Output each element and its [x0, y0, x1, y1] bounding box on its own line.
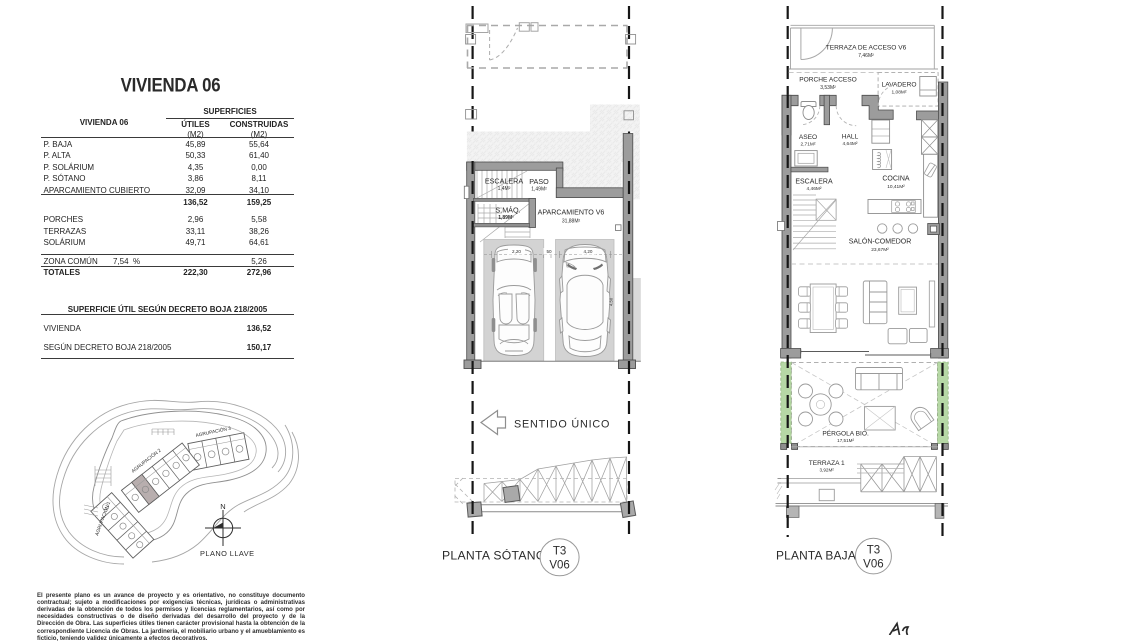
- svg-text:4,20: 4,20: [584, 249, 593, 254]
- svg-text:ASEO: ASEO: [799, 134, 817, 141]
- svg-text:4,46M²: 4,46M²: [807, 186, 822, 192]
- svg-text:2,20: 2,20: [512, 249, 521, 254]
- svg-text:23,67M²: 23,67M²: [871, 247, 889, 253]
- svg-text:1,89M²: 1,89M²: [498, 215, 514, 221]
- svg-text:T3: T3: [553, 546, 566, 558]
- svg-text:TERRAZA 1: TERRAZA 1: [809, 460, 845, 467]
- svg-text:TERRAZA DE ACCESO V6: TERRAZA DE ACCESO V6: [826, 45, 907, 52]
- svg-text:V06: V06: [863, 559, 883, 571]
- svg-text:PASO: PASO: [529, 177, 549, 186]
- svg-text:1,49M²: 1,49M²: [531, 186, 547, 192]
- svg-text:COCINA: COCINA: [882, 176, 910, 183]
- svg-text:3,53M²: 3,53M²: [820, 85, 836, 91]
- svg-text:PLANO LLAVE: PLANO LLAVE: [200, 549, 255, 558]
- svg-text:S.MÁQ.: S.MÁQ.: [495, 206, 520, 215]
- svg-text:ESCALERA: ESCALERA: [485, 177, 524, 186]
- svg-text:17,51M²: 17,51M²: [837, 438, 854, 443]
- svg-text:PORCHE ACCESO: PORCHE ACCESO: [799, 77, 857, 84]
- svg-text:PÉRGOLA BIO.: PÉRGOLA BIO.: [822, 428, 869, 437]
- svg-text:4,64M²: 4,64M²: [843, 141, 858, 147]
- svg-text:3,92M²: 3,92M²: [820, 468, 835, 473]
- svg-text:V06: V06: [549, 560, 569, 572]
- svg-text:ESCALERA: ESCALERA: [795, 178, 833, 185]
- svg-text:SENTIDO ÚNICO: SENTIDO ÚNICO: [514, 418, 610, 431]
- svg-text:1,08M²: 1,08M²: [892, 89, 907, 95]
- svg-text:2,71M²: 2,71M²: [801, 141, 816, 147]
- svg-text:1,4M²: 1,4M²: [498, 186, 511, 192]
- svg-text:31,88M²: 31,88M²: [562, 218, 581, 224]
- svg-text:4,50: 4,50: [609, 297, 614, 306]
- svg-text:SALÓN-COMEDOR: SALÓN-COMEDOR: [849, 236, 912, 245]
- svg-text:7,46M²: 7,46M²: [858, 53, 874, 59]
- svg-text:50: 50: [546, 249, 552, 254]
- svg-text:10,41M²: 10,41M²: [887, 184, 905, 190]
- svg-text:HALL: HALL: [842, 133, 859, 140]
- svg-text:PLANTA BAJA: PLANTA BAJA: [776, 549, 856, 563]
- svg-text:APARCAMIENTO V6: APARCAMIENTO V6: [538, 209, 605, 217]
- svg-text:T3: T3: [867, 545, 880, 557]
- svg-text:LAVADERO: LAVADERO: [882, 82, 917, 89]
- svg-text:N: N: [220, 502, 225, 511]
- svg-text:PLANTA SÓTANO: PLANTA SÓTANO: [442, 548, 546, 563]
